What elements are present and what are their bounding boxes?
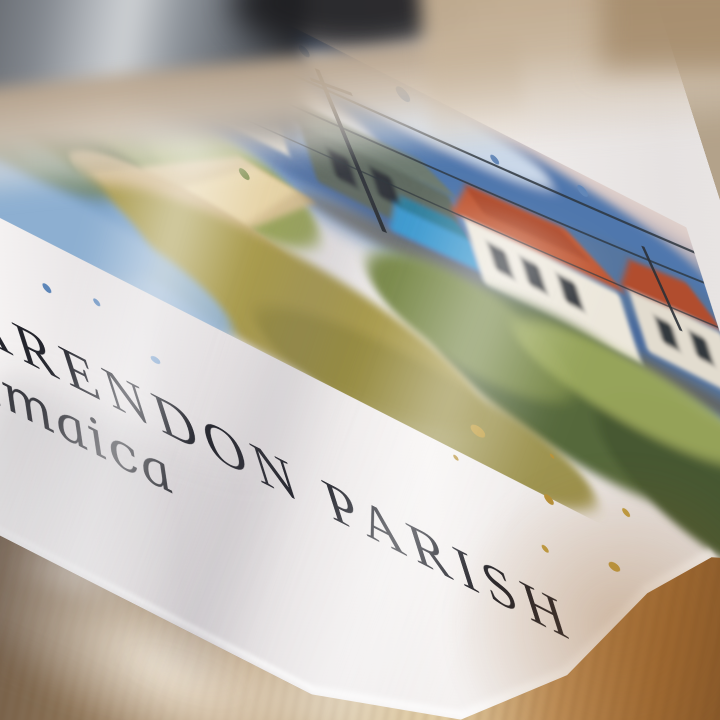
table-corner-shade	[600, 0, 720, 70]
warm-light-corner	[450, 460, 720, 720]
paint-splatter-blue	[41, 282, 52, 295]
photo-scene: CLARENDON PARISH Jamaica	[0, 0, 720, 720]
